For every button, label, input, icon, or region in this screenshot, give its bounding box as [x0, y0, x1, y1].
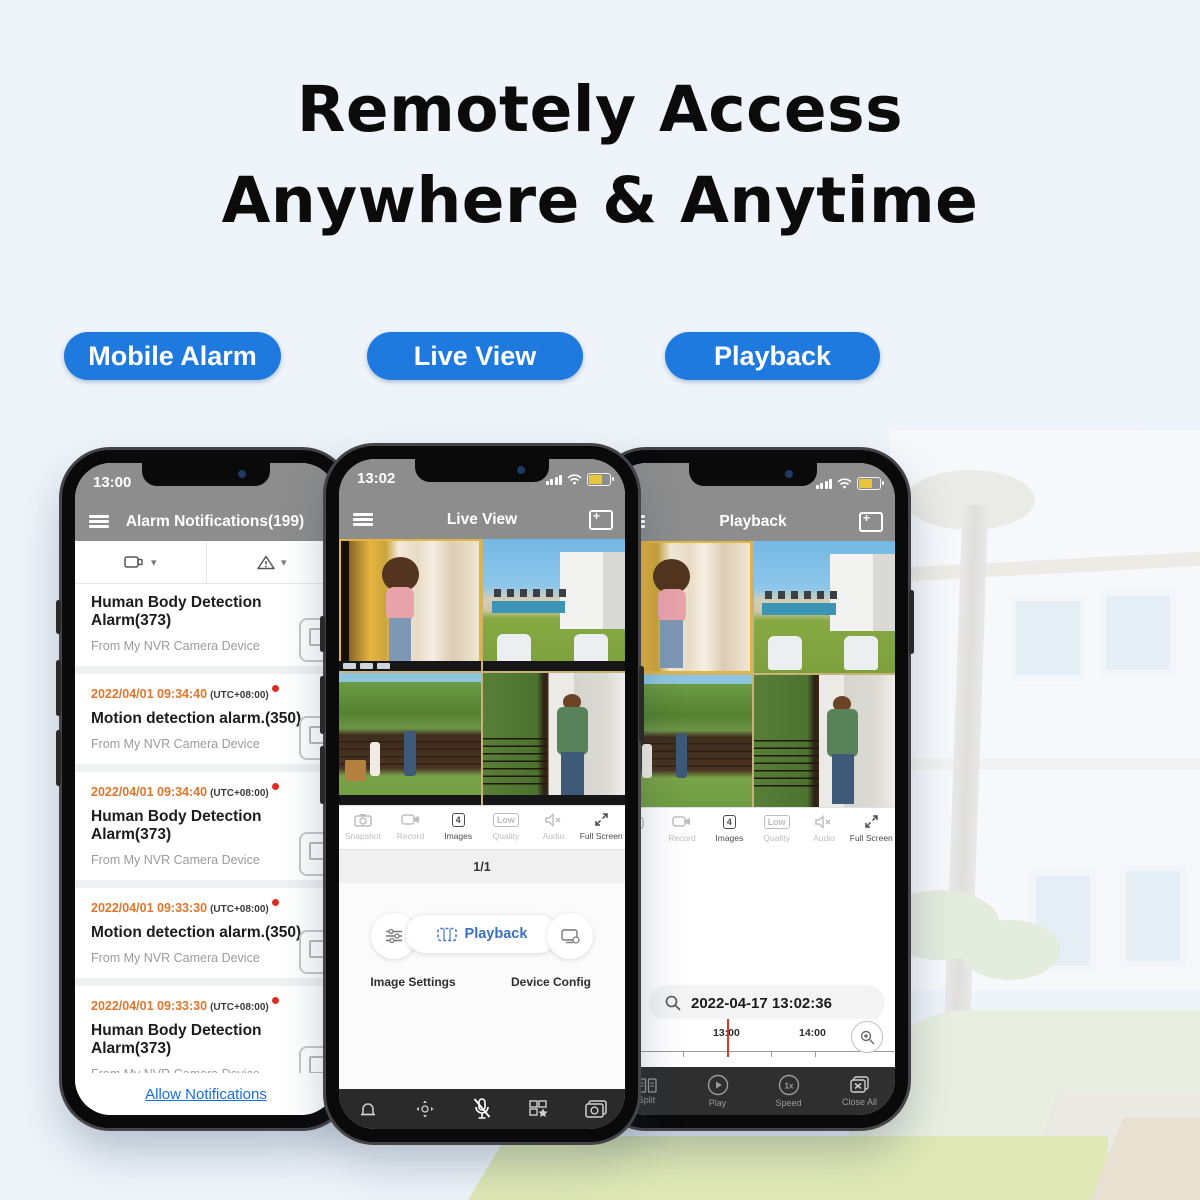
notification-timestamp: 2022/04/01 09:33:30	[91, 901, 207, 915]
power-button	[909, 590, 914, 654]
camera-stack-icon	[585, 1100, 607, 1118]
playback-datetime-search[interactable]: 2022-04-17 13:02:36	[649, 985, 885, 1021]
timeline-tick	[815, 1052, 816, 1057]
camera-feed-backyard-pool[interactable]	[754, 541, 895, 673]
camera-feed-front-door[interactable]	[339, 539, 481, 671]
svg-text:1x: 1x	[784, 1082, 793, 1091]
control-snapshot-label: Snapshot	[345, 831, 381, 841]
timeline-zoom-in-button[interactable]	[851, 1021, 883, 1053]
page-indicator-value: 1/1	[473, 860, 490, 874]
split-icon	[637, 1078, 657, 1093]
quality-badge-value: Low	[493, 813, 519, 827]
close-all-label: Close All	[842, 1097, 877, 1107]
camera-feed-garden[interactable]	[339, 673, 481, 805]
wifi-icon	[837, 478, 852, 489]
camera-filter[interactable]: ▾	[75, 541, 206, 583]
scene-loungers	[765, 591, 838, 599]
notification-source: From My NVR Camera Device	[91, 951, 321, 965]
record-camcorder-icon	[401, 811, 420, 828]
control-record-label: Record	[397, 831, 424, 841]
multi-camera-button[interactable]	[568, 1100, 625, 1118]
control-images-label: Images	[715, 833, 743, 843]
playback-camera-grid	[611, 541, 895, 807]
scene-table	[345, 760, 366, 781]
control-images-label: Images	[444, 831, 472, 841]
unread-dot	[272, 997, 279, 1004]
control-record-label: Record	[668, 833, 695, 843]
headline-line-1: Remotely Access	[0, 64, 1200, 155]
speed-1x-icon: 1x	[778, 1074, 800, 1096]
scene-girl-jeans	[660, 620, 683, 668]
scene-chair	[768, 636, 802, 670]
mute-switch	[320, 616, 325, 652]
alarm-filters: ▾ ▾	[75, 541, 337, 584]
search-icon	[665, 995, 681, 1011]
bg-window	[1100, 590, 1176, 676]
control-images[interactable]: 4 Images	[706, 808, 753, 852]
status-icons	[546, 473, 612, 486]
film-icon	[437, 927, 457, 942]
alarm-type-filter[interactable]: ▾	[206, 541, 338, 583]
wifi-icon	[567, 474, 582, 485]
feed-letterbox	[483, 795, 625, 805]
control-fullscreen-label: Full Screen	[850, 833, 893, 843]
notification-timestamp: 2022/04/01 09:34:40	[91, 785, 207, 799]
close-all-button[interactable]: Close All	[824, 1076, 895, 1107]
live-view-screen: 13:02 Live View	[339, 459, 625, 1129]
record-camcorder-icon	[672, 813, 691, 830]
scene-fence	[483, 732, 548, 785]
scene-person	[676, 733, 687, 778]
playback-button[interactable]: Playback	[665, 332, 880, 380]
audio-muted-icon	[815, 813, 832, 830]
notification-item[interactable]: 2022/04/01 09:34:40(UTC+08:00) Human Bod…	[75, 772, 337, 880]
power-button	[639, 666, 644, 742]
control-record[interactable]: Record	[387, 806, 435, 850]
bg-grass-wedge	[468, 1136, 1108, 1200]
live-view-button-label: Live View	[414, 341, 537, 372]
playback-toolbar: Split Play 1x Speed Close All	[611, 1067, 895, 1115]
live-camera-grid	[339, 539, 625, 805]
talk-mic-button[interactable]	[453, 1097, 510, 1121]
notification-source: From My NVR Camera Device	[91, 737, 321, 751]
playback-shortcut-button[interactable]: Playback	[406, 915, 558, 953]
mini-thumb	[343, 663, 356, 669]
timeline-tick	[683, 1052, 684, 1057]
alarm-screen: 13:00 Alarm Notifications(199) ▾ ▾ Human…	[75, 463, 337, 1115]
notification-timezone: (UTC+08:00)	[210, 1002, 269, 1013]
notification-timestamp: 2022/04/01 09:34:40	[91, 687, 207, 701]
sliders-icon	[385, 928, 403, 944]
scene-person	[370, 742, 380, 776]
device-config-icon	[561, 928, 580, 944]
unread-dot	[272, 899, 279, 906]
mute-switch	[56, 600, 61, 634]
play-label: Play	[709, 1098, 727, 1108]
fullscreen-icon	[594, 811, 609, 828]
timeline-ruler	[611, 1051, 895, 1052]
camera-feed-backyard-pool[interactable]	[483, 539, 625, 671]
alarm-footer: Allow Notifications	[75, 1073, 337, 1115]
speed-button[interactable]: 1x Speed	[753, 1074, 824, 1108]
ptz-pad-icon	[415, 1099, 435, 1119]
live-controls-row: Snapshot Record 4 Images Low Quality Aud…	[339, 805, 625, 850]
scene-girl-top	[658, 589, 686, 623]
images-count-icon: 4	[452, 811, 465, 828]
speed-label: Speed	[775, 1098, 801, 1108]
notification-item[interactable]: Human Body Detection Alarm(373) From My …	[75, 583, 337, 666]
alarm-siren-button[interactable]	[339, 1101, 396, 1117]
playback-phone: Playback	[598, 450, 908, 1128]
favorite-view-button[interactable]	[511, 1100, 568, 1118]
unread-dot	[272, 685, 279, 692]
notification-list: Human Body Detection Alarm(373) From My …	[75, 583, 337, 1115]
scene-pool	[762, 603, 835, 615]
device-config-label: Device Config	[491, 975, 611, 989]
unread-dot	[272, 783, 279, 790]
image-settings-label: Image Settings	[353, 975, 473, 989]
control-audio[interactable]: Audio	[530, 806, 578, 850]
live-bottom-toolbar	[339, 1089, 625, 1129]
play-icon	[707, 1074, 729, 1096]
snapshot-camera-icon	[354, 811, 372, 828]
control-audio[interactable]: Audio	[800, 808, 847, 852]
playback-title: Playback	[611, 513, 895, 531]
alert-filter-icon	[257, 555, 275, 570]
volume-up-button	[320, 676, 325, 734]
timeline-cursor[interactable]	[727, 1019, 729, 1057]
status-time: 13:00	[93, 474, 131, 491]
bg-window	[1120, 865, 1186, 967]
alarm-siren-icon	[359, 1101, 377, 1117]
headline-line-2: Anywhere & Anytime	[0, 155, 1200, 246]
alarm-phone: 13:00 Alarm Notifications(199) ▾ ▾ Human…	[62, 450, 350, 1128]
notification-timezone: (UTC+08:00)	[210, 904, 269, 915]
feed-letterbox	[483, 661, 625, 671]
notification-timestamp: 2022/04/01 09:33:30	[91, 999, 207, 1013]
quality-badge-value: Low	[764, 815, 790, 829]
quality-badge-icon: Low	[764, 813, 790, 830]
add-window-icon[interactable]	[589, 510, 613, 530]
control-quality[interactable]: Low Quality	[753, 808, 800, 852]
split-label: Split	[638, 1095, 656, 1105]
notification-title: Human Body Detection Alarm(373)	[91, 1022, 321, 1058]
alarm-title: Alarm Notifications(199)	[75, 513, 337, 531]
timeline-tick	[639, 1052, 640, 1057]
volume-down-button	[320, 746, 325, 804]
playback-timeline[interactable]: 12:00 13:00 14:00	[611, 1019, 895, 1067]
playback-shortcut-label: Playback	[465, 926, 528, 942]
quick-actions-panel: Playback Image Settings Device Config	[339, 883, 625, 1089]
images-count-value: 4	[452, 813, 465, 827]
notch	[415, 459, 549, 482]
control-audio-label: Audio	[813, 833, 835, 843]
chevron-down-icon: ▾	[281, 556, 287, 569]
control-quality-label: Quality	[763, 833, 789, 843]
notification-item[interactable]: 2022/04/01 09:33:30(UTC+08:00) Motion de…	[75, 888, 337, 978]
mini-thumb	[377, 663, 390, 669]
control-snapshot[interactable]: Snapshot	[339, 806, 387, 850]
chevron-down-icon: ▾	[151, 556, 157, 569]
scene-girl-top	[386, 587, 414, 621]
battery-icon	[857, 477, 881, 490]
volume-up-button	[56, 660, 61, 716]
signal-icon	[816, 479, 833, 489]
control-audio-label: Audio	[543, 831, 565, 841]
page-title: Remotely Access Anywhere & Anytime	[0, 64, 1200, 247]
scene-girl-jeans	[389, 618, 412, 666]
page-indicator: 1/1	[339, 849, 625, 884]
notification-title: Human Body Detection Alarm(373)	[91, 808, 321, 844]
zoom-in-icon	[860, 1030, 875, 1045]
camera-feed-side-door[interactable]	[754, 675, 895, 807]
playback-datetime-value: 2022-04-17 13:02:36	[691, 995, 832, 1012]
scene-loungers	[494, 589, 568, 597]
timeline-tick	[771, 1052, 772, 1057]
playback-screen: Playback	[611, 463, 895, 1115]
scene-house	[560, 552, 625, 629]
control-fullscreen[interactable]: Full Screen	[848, 808, 895, 852]
live-view-button[interactable]: Live View	[367, 332, 583, 380]
volume-down-button	[56, 730, 61, 786]
feed-letterbox	[339, 661, 481, 671]
playback-button-label: Playback	[714, 341, 831, 372]
camera-feed-side-door[interactable]	[483, 673, 625, 805]
scene-man-shirt	[827, 709, 858, 757]
notification-timezone: (UTC+08:00)	[210, 690, 269, 701]
images-count-value: 4	[723, 815, 736, 829]
bg-pergola	[900, 758, 1200, 770]
quality-badge-icon: Low	[493, 811, 519, 828]
ptz-pad-button[interactable]	[396, 1099, 453, 1119]
scene-house	[830, 554, 895, 631]
scene-person	[404, 731, 415, 776]
status-time: 13:02	[357, 470, 395, 487]
feed-letterbox	[339, 795, 481, 805]
control-quality-label: Quality	[493, 831, 519, 841]
notification-title: Motion detection alarm.(350)	[91, 924, 321, 942]
notch	[142, 463, 270, 486]
device-config-button[interactable]	[547, 913, 593, 959]
allow-notifications-link[interactable]: Allow Notifications	[145, 1086, 267, 1103]
signal-icon	[546, 475, 563, 485]
notification-source: From My NVR Camera Device	[91, 639, 321, 653]
battery-icon	[587, 473, 611, 486]
fullscreen-icon	[864, 813, 879, 830]
bg-window	[1010, 595, 1086, 681]
mini-thumb	[360, 663, 373, 669]
mic-muted-icon	[471, 1097, 493, 1121]
multiview-star-icon	[529, 1100, 549, 1118]
scene-chair	[844, 636, 878, 670]
control-images[interactable]: 4 Images	[434, 806, 482, 850]
scene-man-jeans	[832, 754, 855, 804]
status-icons	[816, 477, 882, 490]
live-view-title: Live View	[339, 511, 625, 529]
scene-pool	[492, 601, 566, 613]
playback-controls-row: Record 4 Images Low Quality Audio Full S…	[611, 807, 895, 852]
control-fullscreen-label: Full Screen	[580, 831, 623, 841]
control-fullscreen[interactable]: Full Screen	[577, 806, 625, 850]
control-quality[interactable]: Low Quality	[482, 806, 530, 850]
play-button[interactable]: Play	[682, 1074, 753, 1108]
mobile-alarm-button-label: Mobile Alarm	[88, 341, 257, 372]
notification-source: From My NVR Camera Device	[91, 853, 321, 867]
bg-bush	[960, 920, 1060, 980]
scene-fence	[754, 734, 819, 787]
live-view-phone: 13:02 Live View	[326, 446, 638, 1142]
page: Remotely Access Anywhere & Anytime Mobil…	[0, 0, 1200, 1200]
scene-man-shirt	[557, 707, 588, 755]
timeline-label-14: 14:00	[799, 1027, 826, 1039]
mobile-alarm-button[interactable]: Mobile Alarm	[64, 332, 281, 380]
camera-filter-icon	[124, 555, 145, 569]
images-count-icon: 4	[723, 813, 736, 830]
notification-title: Motion detection alarm.(350)	[91, 710, 321, 728]
audio-muted-icon	[545, 811, 562, 828]
notification-title: Human Body Detection Alarm(373)	[91, 594, 321, 630]
close-all-icon	[849, 1076, 871, 1095]
control-record[interactable]: Record	[658, 808, 705, 852]
notification-timezone: (UTC+08:00)	[210, 788, 269, 799]
notification-item[interactable]: 2022/04/01 09:34:40(UTC+08:00) Motion de…	[75, 674, 337, 764]
scene-person	[642, 744, 652, 778]
notch	[689, 463, 817, 486]
add-window-icon[interactable]	[859, 512, 883, 532]
